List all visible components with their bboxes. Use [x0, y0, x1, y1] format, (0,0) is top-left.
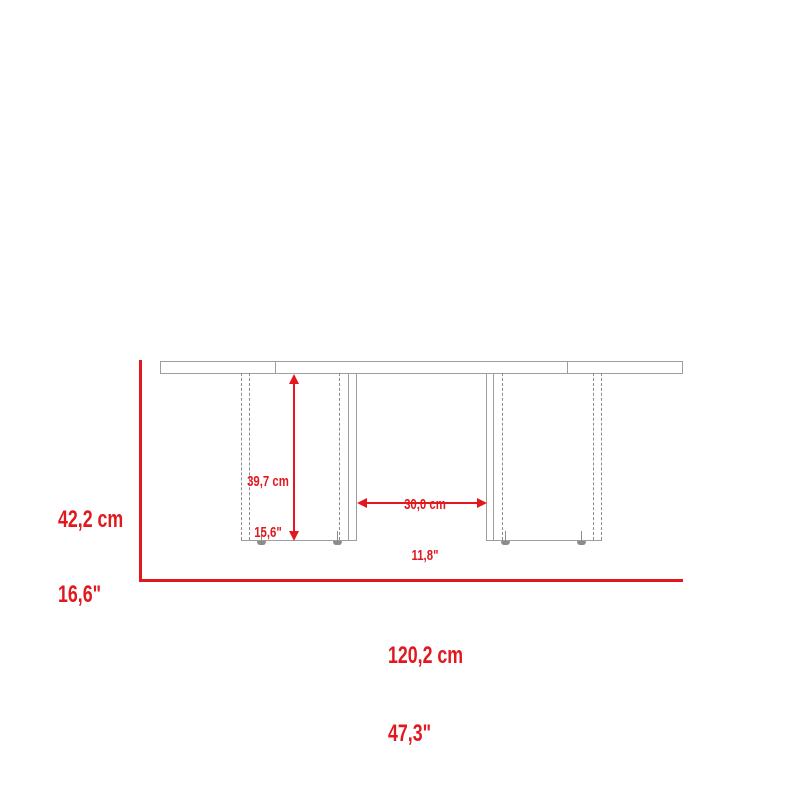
right-leg-hidden-edge: [601, 373, 602, 540]
leg-clearance-inches: 11,8": [387, 547, 463, 564]
right-leg-edge: [486, 373, 487, 540]
leveler-foot-icon: [505, 531, 506, 541]
overall-height-reference-line: [139, 360, 142, 582]
arrowhead-right-icon: [477, 498, 487, 508]
overall-width-inches: 47,3": [388, 721, 463, 747]
overall-width-cm: 120,2 cm: [388, 643, 463, 669]
leveler-foot-icon: [581, 531, 582, 541]
leg-height-cm: 39,7 cm: [230, 473, 306, 490]
dimension-diagram: 42,2 cm 16,6" 120,2 cm 47,3" 39,7 cm 15,…: [0, 0, 800, 800]
tabletop: [160, 361, 683, 374]
left-leg-hidden-edge: [339, 373, 340, 540]
overall-width-label: 120,2 cm 47,3": [388, 591, 463, 799]
right-leg-edge: [493, 373, 494, 540]
tabletop-seam-right: [567, 361, 568, 374]
leveler-foot-icon: [577, 541, 586, 545]
overall-height-inches: 16,6": [58, 582, 123, 607]
right-leg-hidden-edge: [502, 373, 503, 540]
leg-height-inches: 15,6": [230, 524, 306, 541]
leveler-foot-icon: [333, 541, 342, 545]
leg-clearance-cm: 30,0 cm: [387, 496, 463, 513]
leveler-foot-icon: [501, 541, 510, 545]
leg-height-label: 39,7 cm 15,6": [230, 439, 306, 575]
tabletop-seam-left: [275, 361, 276, 374]
left-leg-edge: [356, 373, 357, 540]
right-leg-hidden-edge: [593, 373, 594, 540]
left-leg-edge: [348, 373, 349, 540]
leg-clearance-label: 30,0 cm 11,8": [387, 462, 463, 598]
leveler-foot-icon: [337, 531, 338, 541]
overall-height-label: 42,2 cm 16,6": [58, 457, 123, 657]
overall-height-cm: 42,2 cm: [58, 507, 123, 532]
